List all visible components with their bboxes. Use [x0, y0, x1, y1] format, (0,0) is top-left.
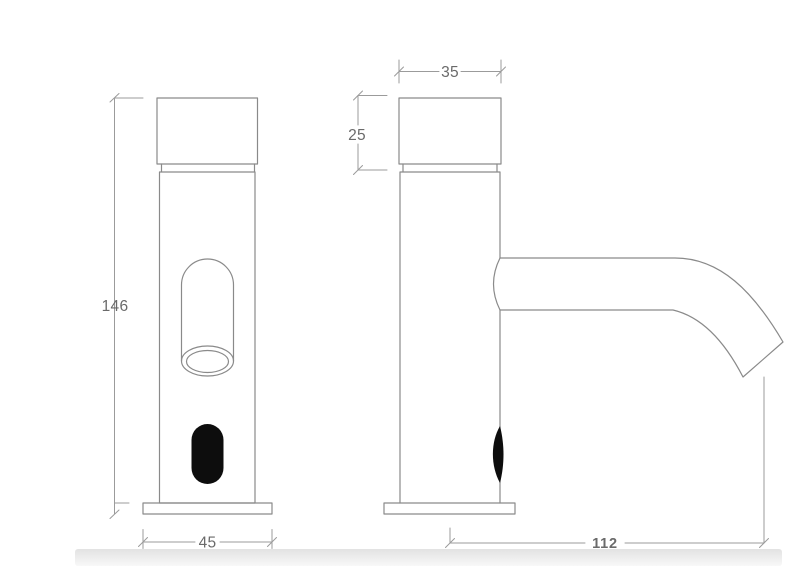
side-view [384, 98, 783, 514]
side-base-plate [384, 503, 515, 514]
bottom-gray-band [75, 549, 782, 566]
side-joint-ring [403, 164, 497, 172]
front-cap [157, 98, 258, 164]
side-spout [500, 258, 783, 377]
side-sensor-window [493, 426, 504, 483]
dim-label-cap-height: 25 [348, 127, 366, 144]
dim-label-base-width: 45 [199, 535, 217, 552]
front-sensor-window [192, 424, 224, 484]
side-body [400, 172, 500, 503]
drawing-canvas: 146 45 35 25 112 [0, 0, 800, 566]
faucet-dimension-drawing: 146 45 35 25 112 [0, 0, 800, 566]
spout-junction-arc [494, 258, 501, 310]
dim-label-cap-width: 35 [441, 64, 459, 81]
dim-label-height: 146 [102, 298, 129, 315]
front-joint-ring [162, 164, 255, 172]
side-cap [399, 98, 501, 164]
front-base-plate [143, 503, 272, 514]
front-spout-rim-inner [187, 351, 229, 373]
